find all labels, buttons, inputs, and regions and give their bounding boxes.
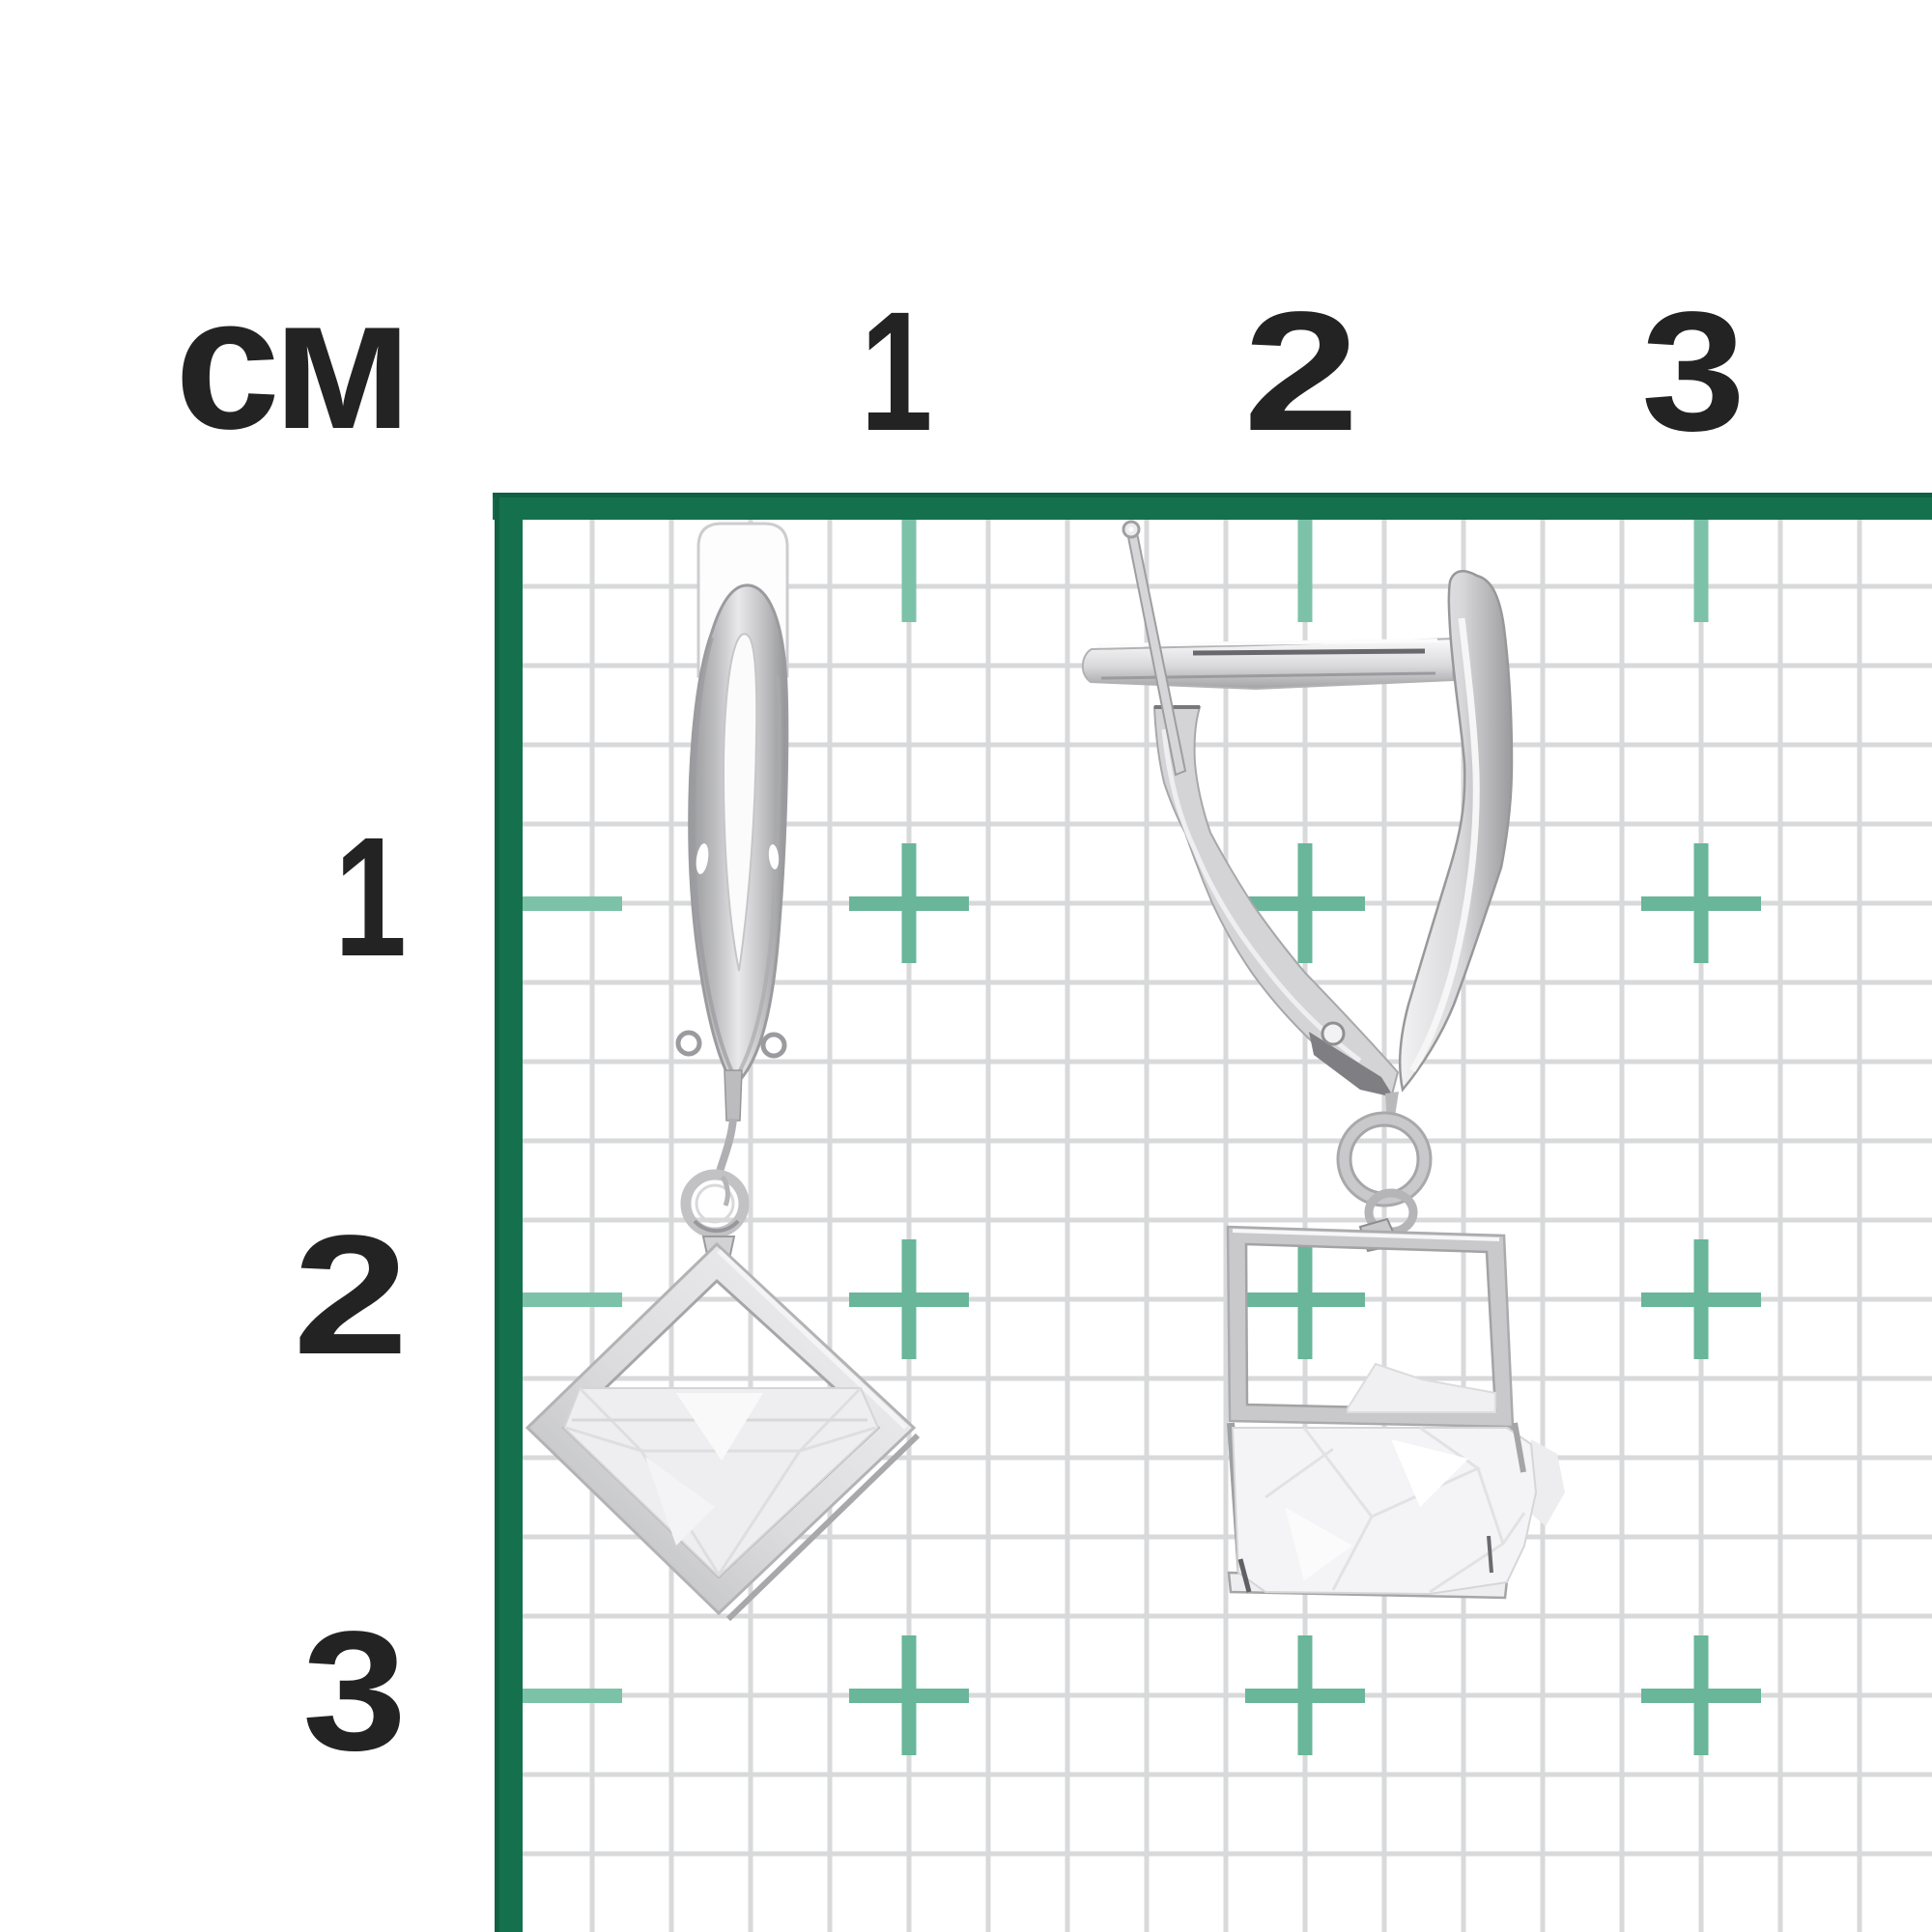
svg-text:2: 2 xyxy=(293,1201,409,1390)
svg-text:1: 1 xyxy=(334,803,407,992)
svg-text:см: см xyxy=(175,257,405,469)
svg-text:3: 3 xyxy=(1641,277,1746,467)
svg-text:3: 3 xyxy=(302,1597,407,1786)
svg-text:1: 1 xyxy=(861,277,933,467)
svg-text:2: 2 xyxy=(1243,277,1359,467)
